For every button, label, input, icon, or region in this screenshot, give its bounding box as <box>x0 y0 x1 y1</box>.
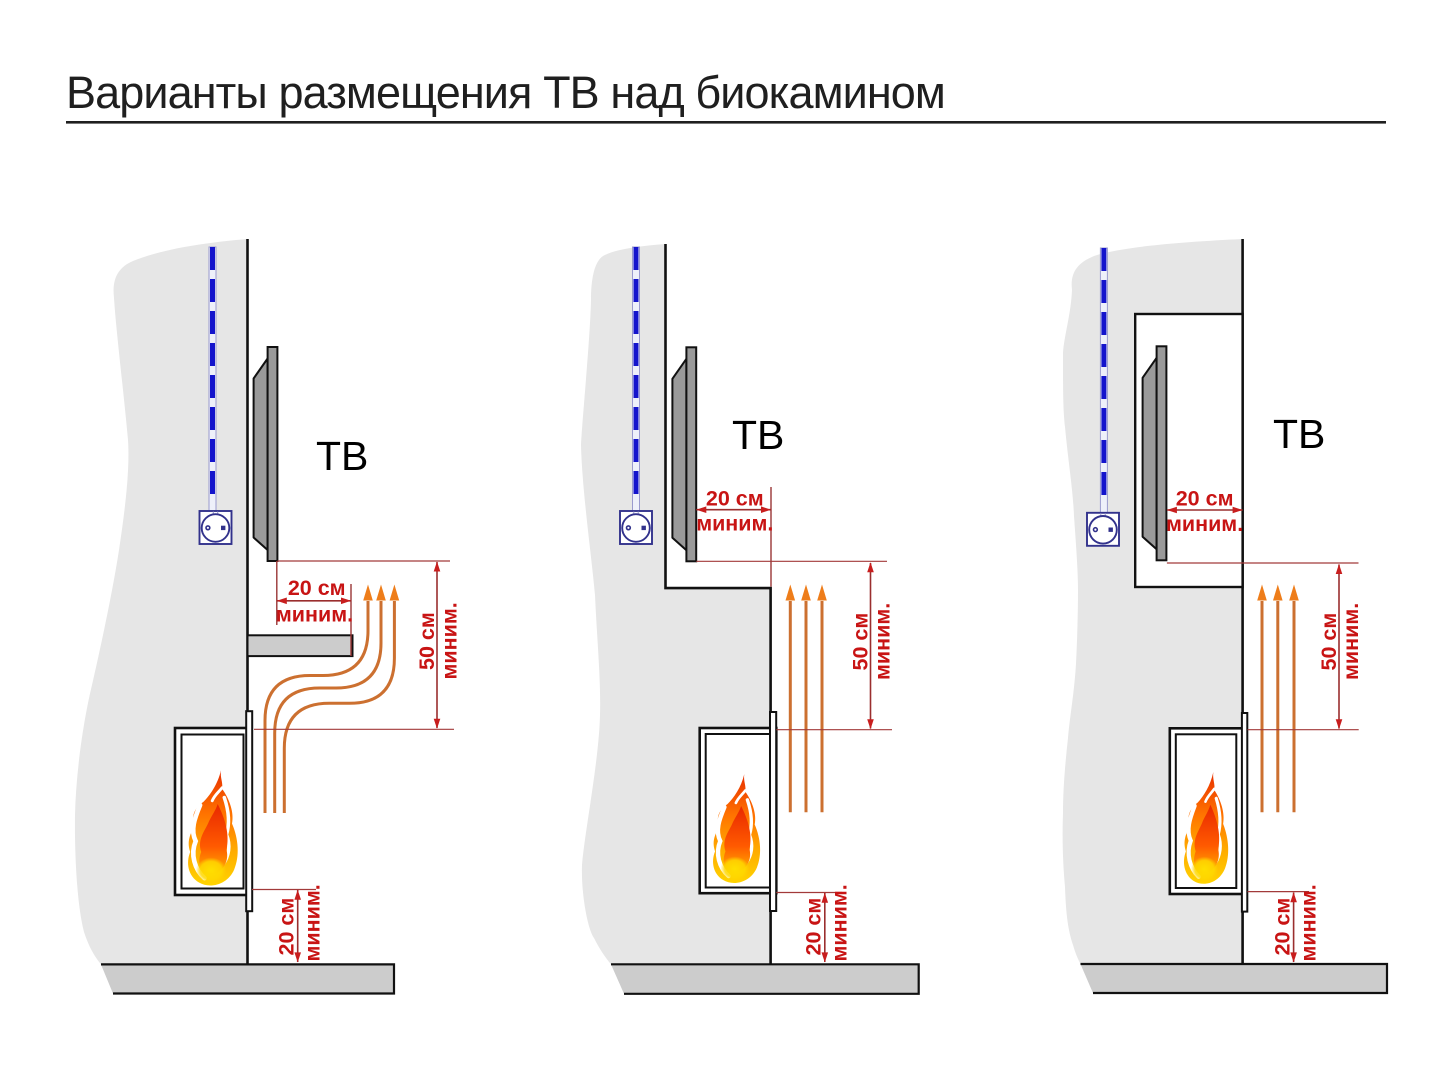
svg-text:50 см: 50 см <box>849 613 873 671</box>
svg-text:Варианты размещения ТВ над био: Варианты размещения ТВ над биокамином <box>66 67 945 118</box>
svg-text:миним.: миним. <box>1296 884 1320 961</box>
svg-text:миним.: миним. <box>438 602 462 679</box>
svg-text:миним.: миним. <box>301 884 325 961</box>
svg-text:20 см: 20 см <box>1176 486 1234 510</box>
svg-text:миним.: миним. <box>1166 512 1243 536</box>
svg-text:миним.: миним. <box>276 603 353 627</box>
svg-text:20 см: 20 см <box>275 898 299 956</box>
svg-text:50 см: 50 см <box>1317 613 1341 671</box>
svg-text:20 см: 20 см <box>802 898 826 956</box>
svg-text:миним.: миним. <box>828 884 852 961</box>
svg-text:ТВ: ТВ <box>316 433 368 479</box>
svg-text:20 см: 20 см <box>706 487 764 511</box>
svg-text:ТВ: ТВ <box>1273 411 1325 457</box>
svg-text:миним.: миним. <box>1339 603 1363 680</box>
svg-text:20 см: 20 см <box>288 576 346 600</box>
svg-text:миним.: миним. <box>696 512 773 536</box>
svg-text:ТВ: ТВ <box>732 412 784 458</box>
svg-text:50 см: 50 см <box>415 612 439 670</box>
svg-text:20 см: 20 см <box>1270 898 1294 956</box>
svg-text:миним.: миним. <box>871 603 895 680</box>
